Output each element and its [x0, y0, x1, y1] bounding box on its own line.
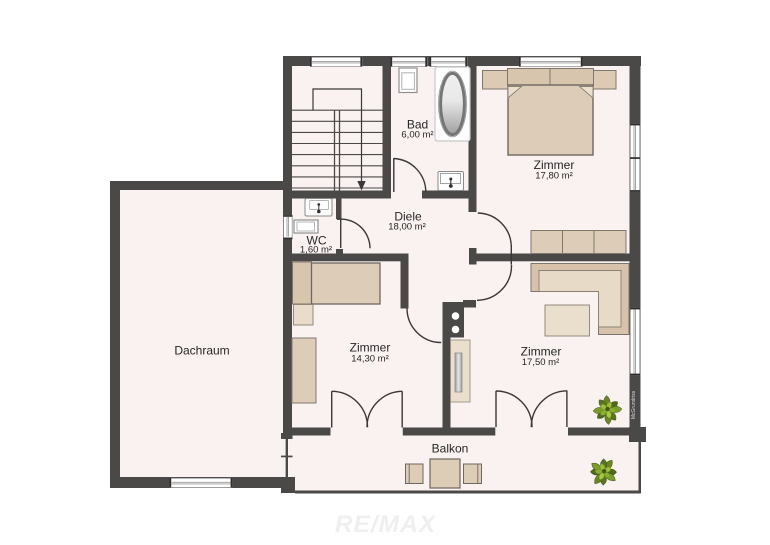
- svg-text:17,50 m²: 17,50 m²: [522, 357, 560, 368]
- svg-text:1,60 m²: 1,60 m²: [300, 245, 332, 256]
- svg-text:Dachraum: Dachraum: [174, 344, 229, 358]
- svg-text:RE/MAX: RE/MAX: [335, 511, 437, 538]
- svg-text:6,00 m²: 6,00 m²: [401, 130, 433, 141]
- svg-text:14,30 m²: 14,30 m²: [351, 354, 389, 365]
- svg-text:Balkon: Balkon: [432, 442, 469, 456]
- svg-text:18,00 m²: 18,00 m²: [388, 222, 426, 233]
- svg-text:Zimmer: Zimmer: [350, 341, 391, 355]
- svg-text:17,80 m²: 17,80 m²: [535, 170, 573, 181]
- svg-text:McGrundriss: McGrundriss: [631, 390, 637, 419]
